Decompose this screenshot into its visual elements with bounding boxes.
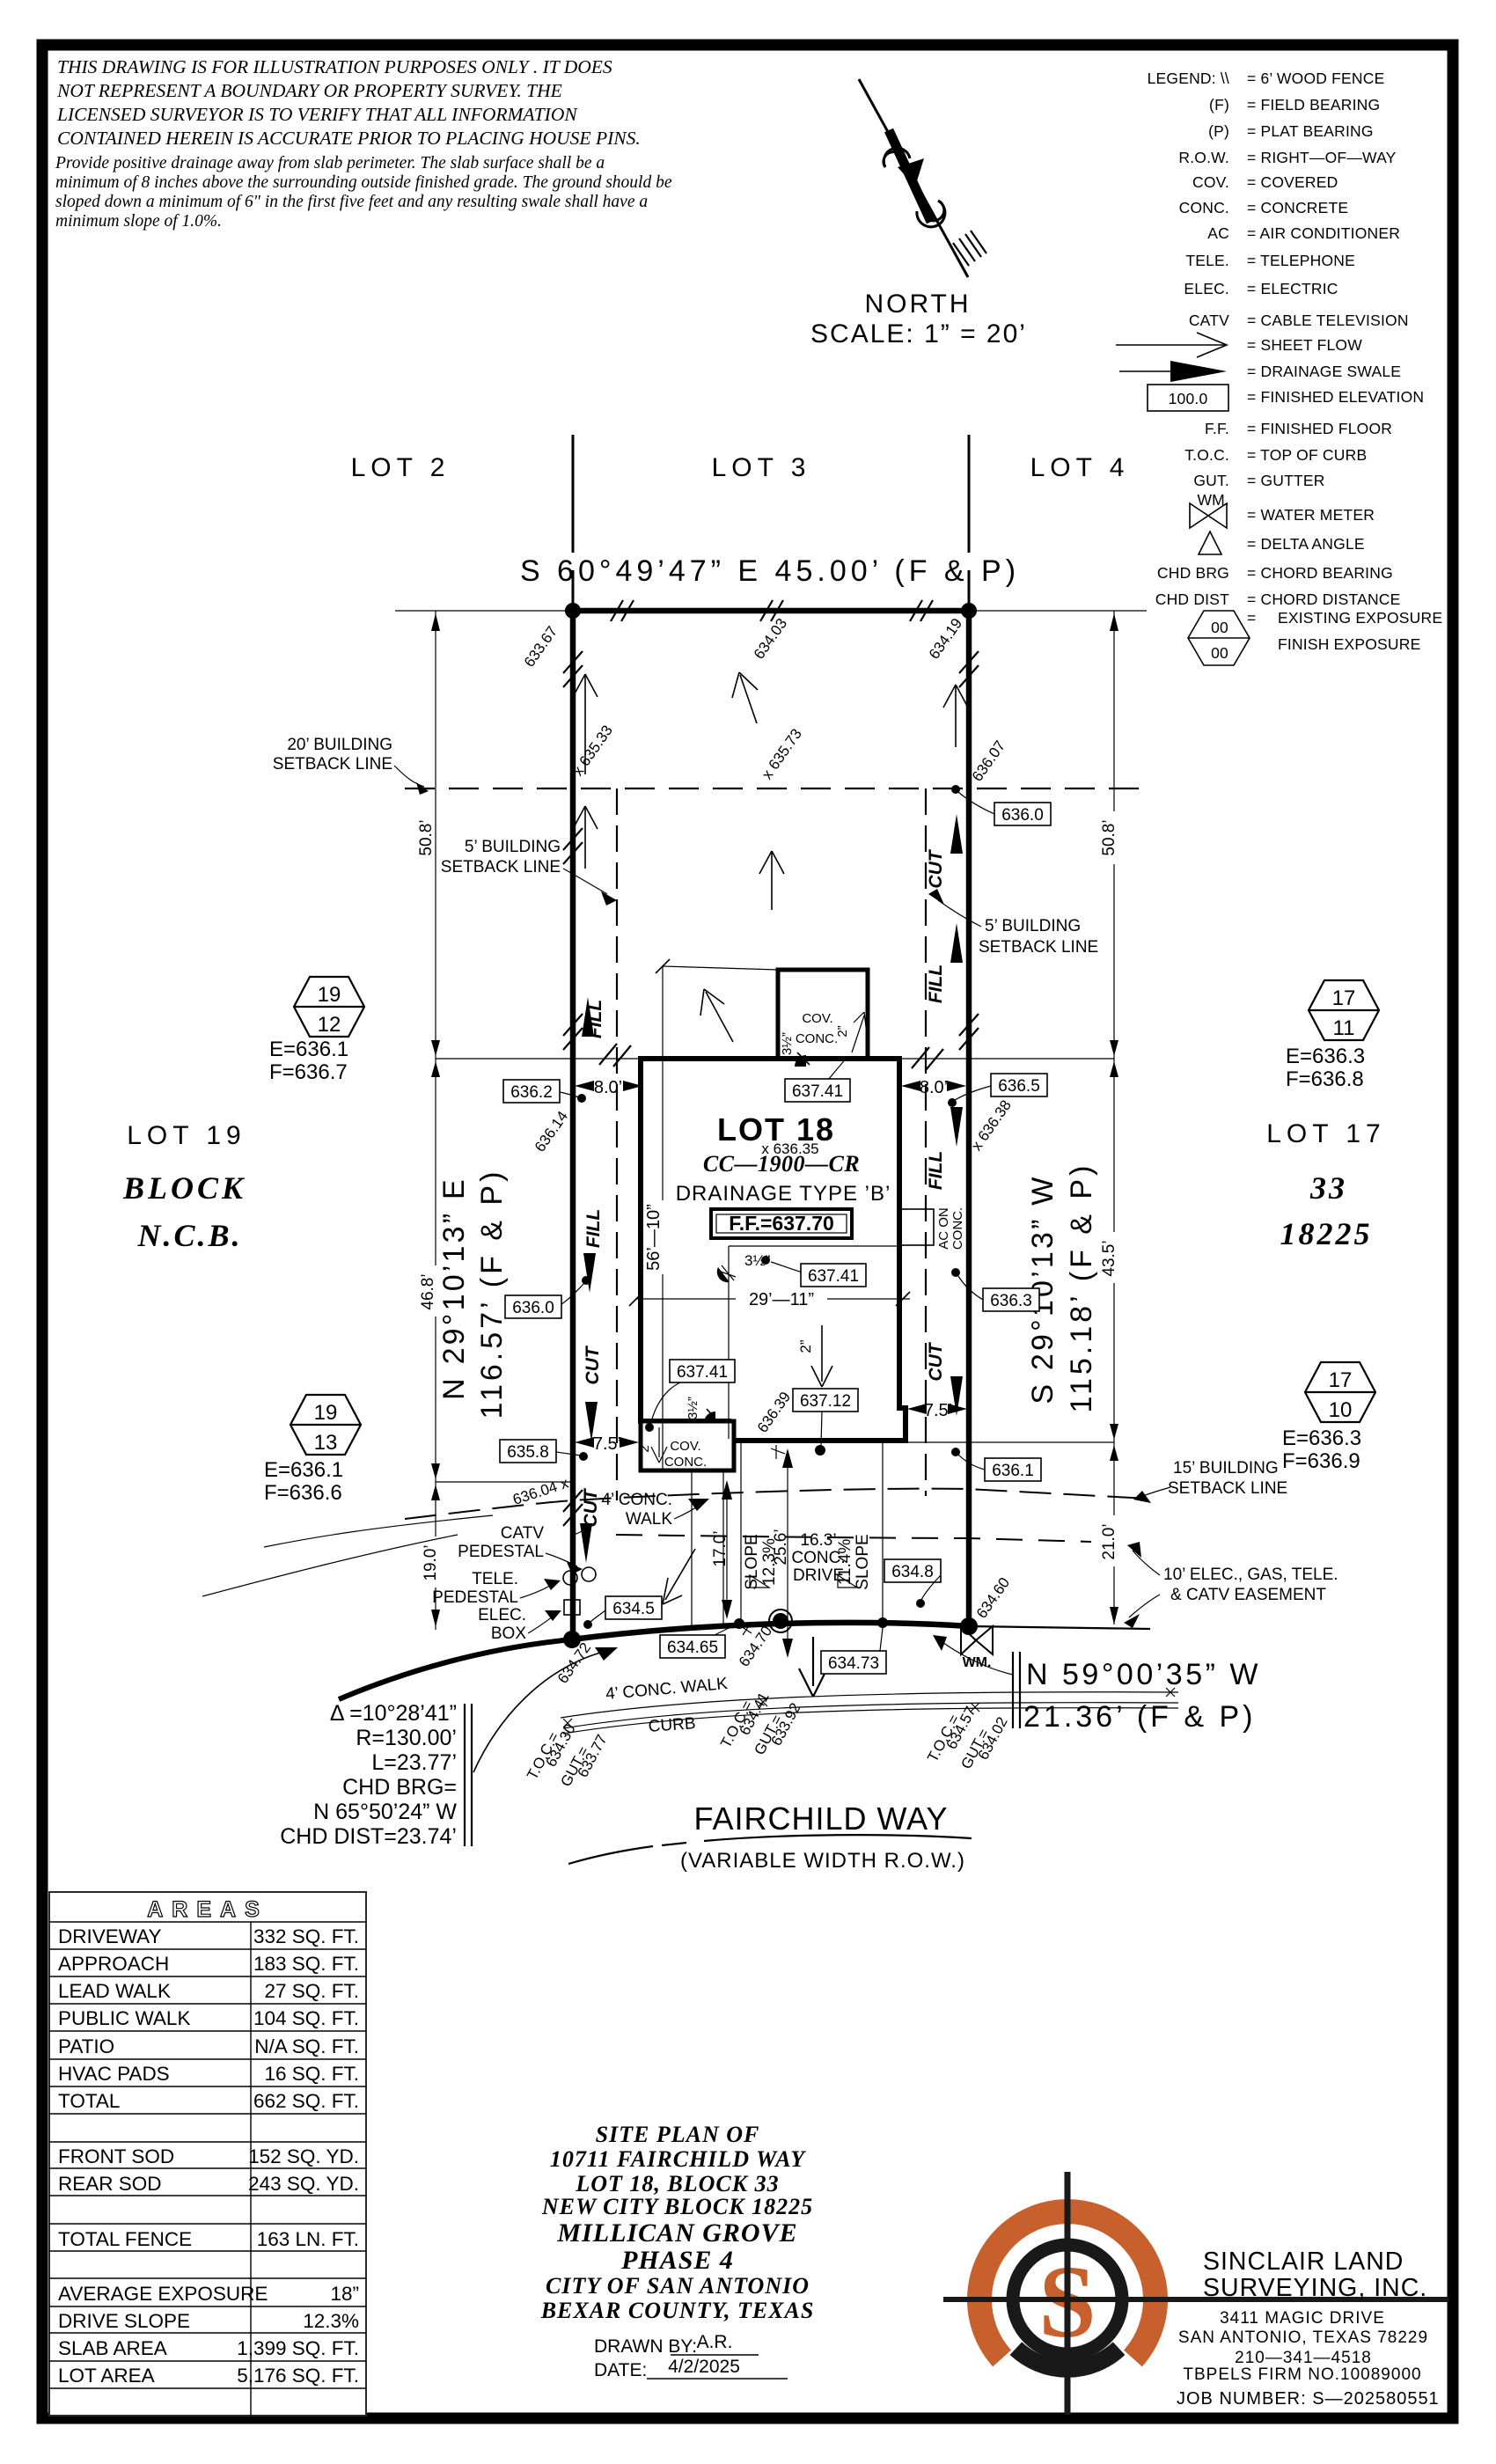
svg-text:WM.: WM. (963, 1655, 992, 1670)
svg-text:634.65: 634.65 (667, 1639, 718, 1657)
svg-text:SURVEYING, INC.: SURVEYING, INC. (1203, 2274, 1427, 2302)
svg-text:210—341—4518: 210—341—4518 (1235, 2349, 1372, 2367)
svg-text:636.5: 636.5 (998, 1077, 1040, 1096)
svg-text:18”: 18” (330, 2283, 359, 2305)
svg-text:DRIVEWAY: DRIVEWAY (58, 1925, 162, 1947)
svg-text:BLOCK: BLOCK (122, 1170, 246, 1206)
svg-text:LEGEND: \\: LEGEND: \\ (1148, 70, 1229, 87)
svg-text:THIS DRAWING IS FOR ILLUSTRATI: THIS DRAWING IS FOR ILLUSTRATION PURPOSE… (57, 56, 612, 77)
svg-text:SITE PLAN OF: SITE PLAN OF (596, 2122, 760, 2147)
svg-text:637.41: 637.41 (808, 1267, 859, 1286)
svg-text:19.0’: 19.0’ (422, 1544, 440, 1580)
svg-text:= PLAT BEARING: = PLAT BEARING (1247, 122, 1374, 140)
svg-text:Δ =10°28’41”: Δ =10°28’41” (330, 1701, 457, 1726)
svg-text:5’ BUILDING: 5’ BUILDING (985, 917, 1081, 935)
svg-text:7.5’: 7.5’ (924, 1401, 952, 1420)
svg-text:7.5’: 7.5’ (593, 1434, 621, 1454)
svg-text:N 65°50’24” W: N 65°50’24” W (313, 1800, 457, 1824)
svg-text:CONC.: CONC. (1179, 199, 1229, 216)
svg-text:AC: AC (1207, 224, 1229, 242)
svg-text:8.0’: 8.0’ (920, 1078, 948, 1097)
svg-text:& CATV EASEMENT: & CATV EASEMENT (1170, 1586, 1326, 1604)
svg-text:637.41: 637.41 (792, 1082, 843, 1101)
svg-text:= SHEET FLOW: = SHEET FLOW (1247, 336, 1362, 354)
svg-text:10711 FAIRCHILD WAY: 10711 FAIRCHILD WAY (550, 2146, 806, 2172)
svg-text:LOT 4: LOT 4 (1030, 453, 1130, 482)
svg-text:A.R.: A.R. (697, 2332, 733, 2352)
svg-text:183 SQ. FT.: 183 SQ. FT. (253, 1953, 359, 1975)
svg-text:12.3%: 12.3% (303, 2310, 359, 2332)
svg-text:1,399 SQ. FT.: 1,399 SQ. FT. (237, 2337, 359, 2359)
svg-text:PEDESTAL: PEDESTAL (458, 1543, 544, 1561)
svg-text:4’ CONC.: 4’ CONC. (601, 1491, 672, 1509)
svg-text:= 6’ WOOD FENCE: = 6’ WOOD FENCE (1247, 70, 1384, 87)
svg-text:PATIO: PATIO (58, 2035, 114, 2057)
svg-text:17.0’: 17.0’ (711, 1530, 730, 1566)
svg-text:SLAB AREA: SLAB AREA (58, 2337, 167, 2359)
svg-text:15’ BUILDING: 15’ BUILDING (1173, 1459, 1279, 1478)
svg-text:2”: 2” (835, 1025, 850, 1037)
svg-text:MILLICAN GROVE: MILLICAN GROVE (556, 2218, 797, 2248)
svg-text:163 LN. FT.: 163 LN. FT. (257, 2228, 359, 2250)
svg-text:= DRAINAGE SWALE: = DRAINAGE SWALE (1247, 363, 1401, 380)
svg-text:116.57’ (F & P): 116.57’ (F & P) (475, 1169, 509, 1419)
svg-text:00: 00 (1211, 644, 1228, 662)
svg-text:COV.: COV. (802, 1011, 832, 1026)
svg-text:WALK: WALK (626, 1510, 672, 1529)
svg-text:33: 33 (1309, 1170, 1347, 1206)
svg-text:E=636.1: E=636.1 (264, 1458, 343, 1482)
svg-text:= RIGHT—OF—WAY: = RIGHT—OF—WAY (1247, 149, 1397, 166)
svg-text:F=636.8: F=636.8 (1286, 1067, 1364, 1091)
svg-text:E=636.1: E=636.1 (269, 1038, 348, 1061)
svg-text:REAR SOD: REAR SOD (58, 2173, 162, 2195)
svg-text:11: 11 (1333, 1016, 1355, 1040)
svg-text:100.0: 100.0 (1169, 390, 1208, 407)
svg-text:= COVERED: = COVERED (1247, 173, 1338, 191)
svg-text:BEXAR COUNTY, TEXAS: BEXAR COUNTY, TEXAS (540, 2298, 815, 2323)
svg-text:AVERAGE EXPOSURE: AVERAGE EXPOSURE (58, 2283, 268, 2305)
svg-text:CONC.: CONC. (664, 1455, 707, 1470)
svg-text:PHASE 4: PHASE 4 (620, 2246, 734, 2275)
svg-text:minimum slope of 1.0%.: minimum slope of 1.0%. (55, 212, 222, 231)
svg-text:COV.: COV. (1192, 173, 1229, 191)
svg-text:LOT 18, BLOCK 33: LOT 18, BLOCK 33 (575, 2171, 779, 2196)
svg-text:AREAS: AREAS (147, 1897, 268, 1922)
svg-text:104 SQ. FT.: 104 SQ. FT. (253, 2007, 359, 2029)
svg-text:= TELEPHONE: = TELEPHONE (1247, 252, 1355, 269)
svg-text:CONC.: CONC. (796, 1031, 838, 1046)
svg-text:= CABLE TELEVISION: = CABLE TELEVISION (1247, 312, 1409, 329)
svg-text:= TOP OF CURB: = TOP OF CURB (1247, 446, 1367, 464)
svg-text:SETBACK LINE: SETBACK LINE (441, 858, 561, 876)
svg-text:ELEC.: ELEC. (478, 1606, 526, 1624)
svg-text:637.12: 637.12 (800, 1392, 851, 1411)
svg-text:HVAC PADS: HVAC PADS (58, 2063, 170, 2085)
svg-text:CATV: CATV (501, 1524, 545, 1543)
svg-text:18225: 18225 (1280, 1216, 1373, 1251)
svg-text:T.O.C.: T.O.C. (1184, 446, 1229, 464)
svg-text:636.1: 636.1 (992, 1462, 1034, 1480)
svg-text:TBPELS FIRM NO.10089000: TBPELS FIRM NO.10089000 (1183, 2365, 1421, 2384)
svg-text:LOT 2: LOT 2 (351, 453, 451, 482)
svg-text:SLOPE: SLOPE (743, 1534, 761, 1589)
svg-text:ELEC.: ELEC. (1184, 280, 1229, 297)
svg-text:F=636.9: F=636.9 (1282, 1449, 1360, 1473)
svg-text:21.0’: 21.0’ (1100, 1523, 1118, 1559)
svg-text:DRAINAGE TYPE ’B’: DRAINAGE TYPE ’B’ (676, 1182, 891, 1206)
svg-text:PUBLIC WALK: PUBLIC WALK (58, 2007, 190, 2029)
svg-text:= CHORD DISTANCE: = CHORD DISTANCE (1247, 590, 1401, 608)
svg-text:3½”: 3½” (780, 1032, 795, 1055)
svg-text:WM.: WM. (1197, 491, 1229, 509)
svg-text:APPROACH: APPROACH (58, 1953, 169, 1975)
svg-text:= FIELD BEARING: = FIELD BEARING (1247, 96, 1380, 114)
svg-text:17: 17 (1329, 1368, 1353, 1392)
svg-text:CHD BRG=: CHD BRG= (342, 1775, 457, 1800)
svg-text:5’ BUILDING: 5’ BUILDING (465, 838, 561, 856)
svg-text:CUT: CUT (583, 1345, 603, 1384)
svg-text:N 29°10’13” E: N 29°10’13” E (437, 1177, 471, 1400)
svg-text:3411 MAGIC DRIVE: 3411 MAGIC DRIVE (1220, 2309, 1385, 2328)
svg-text:(P): (P) (1208, 122, 1229, 140)
svg-text:5,176 SQ. FT.: 5,176 SQ. FT. (237, 2365, 359, 2387)
svg-text:CUT: CUT (926, 1341, 946, 1381)
svg-text:243 SQ. YD.: 243 SQ. YD. (248, 2173, 359, 2195)
svg-text:46.8’: 46.8’ (419, 1273, 437, 1309)
svg-text:TELE.: TELE. (1185, 252, 1229, 269)
svg-text:FILL: FILL (926, 964, 946, 1003)
svg-text:PEDESTAL: PEDESTAL (432, 1588, 518, 1607)
svg-text:12: 12 (318, 1013, 341, 1037)
svg-text:662 SQ. FT.: 662 SQ. FT. (253, 2090, 359, 2112)
svg-text:E=636.3: E=636.3 (1282, 1426, 1361, 1450)
svg-text:636.0: 636.0 (512, 1299, 554, 1317)
svg-text:JOB NUMBER: S—202580551: JOB NUMBER: S—202580551 (1177, 2389, 1440, 2409)
svg-text:= DELTA ANGLE: = DELTA ANGLE (1247, 535, 1365, 553)
svg-text:SINCLAIR LAND: SINCLAIR LAND (1203, 2248, 1404, 2276)
svg-text:= WATER METER: = WATER METER (1247, 506, 1375, 524)
svg-text:SCALE: 1” = 20’: SCALE: 1” = 20’ (810, 319, 1027, 348)
svg-text:13: 13 (314, 1431, 338, 1455)
svg-text:= ELECTRIC: = ELECTRIC (1247, 280, 1338, 297)
svg-text:10: 10 (1329, 1398, 1353, 1422)
svg-text:TOTAL FENCE: TOTAL FENCE (58, 2228, 192, 2250)
svg-text:50.8’: 50.8’ (417, 819, 436, 855)
svg-text:16 SQ. FT.: 16 SQ. FT. (264, 2063, 359, 2085)
svg-text:GUT.: GUT. (1193, 472, 1229, 489)
svg-text:F.F.=637.70: F.F.=637.70 (729, 1212, 834, 1235)
svg-text:FINISH EXPOSURE: FINISH EXPOSURE (1278, 635, 1420, 653)
svg-text:19: 19 (314, 1401, 338, 1425)
svg-text:LICENSED SURVEYOR IS TO VERIFY: LICENSED SURVEYOR IS TO VERIFY THAT ALL … (56, 104, 578, 125)
svg-text:R=130.00’: R=130.00’ (356, 1726, 457, 1750)
svg-text:20’ BUILDING: 20’ BUILDING (287, 736, 392, 754)
svg-text:sloped down a minimum of 6" in: sloped down a minimum of 6" in the first… (55, 193, 648, 211)
svg-text:10’ ELEC., GAS, TELE.: 10’ ELEC., GAS, TELE. (1163, 1566, 1338, 1584)
svg-text:EXISTING EXPOSURE: EXISTING EXPOSURE (1278, 609, 1442, 627)
svg-text:16.3’: 16.3’ (800, 1531, 836, 1550)
svg-text:636.3: 636.3 (990, 1292, 1032, 1310)
svg-text:21.36’ (F & P): 21.36’ (F & P) (1023, 1700, 1256, 1734)
svg-text:CONC.: CONC. (950, 1207, 965, 1250)
svg-text:50.8’: 50.8’ (1100, 819, 1118, 855)
svg-text:FAIRCHILD WAY: FAIRCHILD WAY (693, 1800, 948, 1837)
svg-text:CHD BRG: CHD BRG (1157, 564, 1229, 582)
svg-text:2”: 2” (637, 1441, 652, 1452)
svg-text:SAN ANTONIO, TEXAS 78229: SAN ANTONIO, TEXAS 78229 (1178, 2328, 1428, 2347)
svg-text:FILL: FILL (585, 1000, 605, 1038)
svg-text:FILL: FILL (926, 1151, 946, 1190)
svg-text:4/2/2025: 4/2/2025 (668, 2357, 740, 2377)
svg-text:115.18’ (F & P): 115.18’ (F & P) (1065, 1162, 1098, 1413)
svg-text:R.O.W.: R.O.W. (1178, 149, 1229, 166)
svg-text:00: 00 (1211, 619, 1228, 636)
svg-text:L=23.77’: L=23.77’ (371, 1750, 457, 1775)
svg-text:N 59°00’35” W: N 59°00’35” W (1026, 1658, 1261, 1691)
svg-text:635.8: 635.8 (507, 1443, 549, 1462)
svg-text:TELE.: TELE. (472, 1570, 518, 1588)
svg-text:TOTAL: TOTAL (58, 2090, 120, 2112)
svg-text:(F): (F) (1209, 96, 1229, 114)
svg-text:2”: 2” (797, 1339, 814, 1353)
svg-text:CUT: CUT (926, 848, 946, 888)
svg-text:F=636.6: F=636.6 (264, 1481, 342, 1505)
svg-text:CATV: CATV (1189, 312, 1229, 329)
svg-text:CONTAINED HEREIN IS ACCURATE P: CONTAINED HEREIN IS ACCURATE PRIOR TO PL… (57, 128, 641, 149)
svg-text:FILL: FILL (583, 1209, 604, 1248)
svg-text:636.0: 636.0 (1001, 806, 1044, 825)
svg-text:minimum of 8 inches above the: minimum of 8 inches above the surroundin… (55, 173, 672, 192)
svg-text:SETBACK LINE: SETBACK LINE (979, 938, 1098, 957)
svg-text:43.5’: 43.5’ (1100, 1240, 1118, 1276)
svg-text:12.3%: 12.3% (760, 1538, 779, 1586)
svg-text:NOT REPRESENT A BOUNDARY OR PR: NOT REPRESENT A BOUNDARY OR PROPERTY SUR… (56, 80, 562, 101)
svg-text:SETBACK LINE: SETBACK LINE (273, 755, 392, 774)
svg-text:11.4%: 11.4% (836, 1539, 854, 1586)
svg-text:Provide positive drainage away: Provide positive drainage away from slab… (55, 154, 605, 172)
svg-text:CHD DIST: CHD DIST (1155, 590, 1229, 608)
svg-text:F.F.: F.F. (1205, 420, 1229, 437)
svg-text:= FINISHED ELEVATION: = FINISHED ELEVATION (1247, 388, 1424, 406)
svg-text:CHD DIST=23.74’: CHD DIST=23.74’ (280, 1824, 457, 1849)
svg-text:27 SQ. FT.: 27 SQ. FT. (264, 1980, 359, 2002)
svg-text:636.2: 636.2 (510, 1083, 553, 1102)
svg-text:19: 19 (318, 983, 341, 1007)
svg-text:332 SQ. FT.: 332 SQ. FT. (253, 1925, 359, 1947)
svg-text:CURB: CURB (648, 1714, 696, 1736)
svg-text:DRIVE SLOPE: DRIVE SLOPE (58, 2310, 190, 2332)
svg-text:LEAD WALK: LEAD WALK (58, 1980, 171, 2002)
svg-text:152 SQ. YD.: 152 SQ. YD. (248, 2145, 359, 2167)
svg-text:LOT AREA: LOT AREA (58, 2365, 155, 2387)
svg-text:=: = (1247, 609, 1256, 627)
svg-text:29’—11”: 29’—11” (749, 1290, 814, 1309)
svg-text:634.8: 634.8 (891, 1563, 934, 1581)
svg-text:F=636.7: F=636.7 (269, 1060, 348, 1084)
svg-text:DATE:: DATE: (594, 2360, 647, 2380)
svg-text:N/A SQ. FT.: N/A SQ. FT. (254, 2035, 359, 2057)
svg-text:NORTH: NORTH (864, 290, 971, 319)
svg-text:S 60°49’47” E 45.00’ (F & P): S 60°49’47” E 45.00’ (F & P) (520, 554, 1020, 588)
svg-text:LOT 3: LOT 3 (712, 453, 811, 482)
svg-text:= FINISHED FLOOR: = FINISHED FLOOR (1247, 420, 1392, 437)
svg-text:= CHORD BEARING: = CHORD BEARING (1247, 564, 1393, 582)
svg-text:CITY OF SAN ANTONIO: CITY OF SAN ANTONIO (546, 2273, 810, 2299)
svg-text:= AIR CONDITIONER: = AIR CONDITIONER (1247, 224, 1400, 242)
svg-text:FRONT SOD: FRONT SOD (58, 2145, 174, 2167)
svg-text:E=636.3: E=636.3 (1286, 1045, 1365, 1068)
svg-text:N.C.B.: N.C.B. (136, 1218, 242, 1253)
svg-text:BOX: BOX (491, 1624, 526, 1643)
svg-text:LOT 19: LOT 19 (127, 1121, 246, 1150)
svg-text:3½”: 3½” (686, 1397, 700, 1419)
svg-text:NEW CITY BLOCK 18225: NEW CITY BLOCK 18225 (541, 2194, 813, 2219)
svg-text:(VARIABLE WIDTH R.O.W.): (VARIABLE WIDTH R.O.W.) (680, 1849, 965, 1873)
svg-text:SETBACK LINE: SETBACK LINE (1168, 1479, 1287, 1498)
svg-text:SLOPE: SLOPE (854, 1534, 872, 1589)
svg-text:AC ON: AC ON (936, 1207, 951, 1250)
svg-text:= CONCRETE: = CONCRETE (1247, 199, 1348, 216)
svg-text:CC—1900—CR: CC—1900—CR (703, 1151, 860, 1177)
svg-text:637.41: 637.41 (677, 1363, 728, 1382)
svg-text:17: 17 (1332, 986, 1356, 1010)
svg-text:8.0’: 8.0’ (594, 1078, 622, 1097)
svg-text:634.73: 634.73 (828, 1654, 879, 1673)
svg-text:DRAWN BY:: DRAWN BY: (594, 2336, 697, 2357)
svg-text:634.5: 634.5 (612, 1600, 655, 1618)
svg-text:CUT: CUT (581, 1487, 601, 1527)
svg-text:COV.: COV. (670, 1439, 700, 1454)
svg-text:56’—10”: 56’—10” (644, 1204, 664, 1271)
svg-text:= GUTTER: = GUTTER (1247, 472, 1325, 489)
svg-text:LOT 17: LOT 17 (1266, 1119, 1386, 1148)
